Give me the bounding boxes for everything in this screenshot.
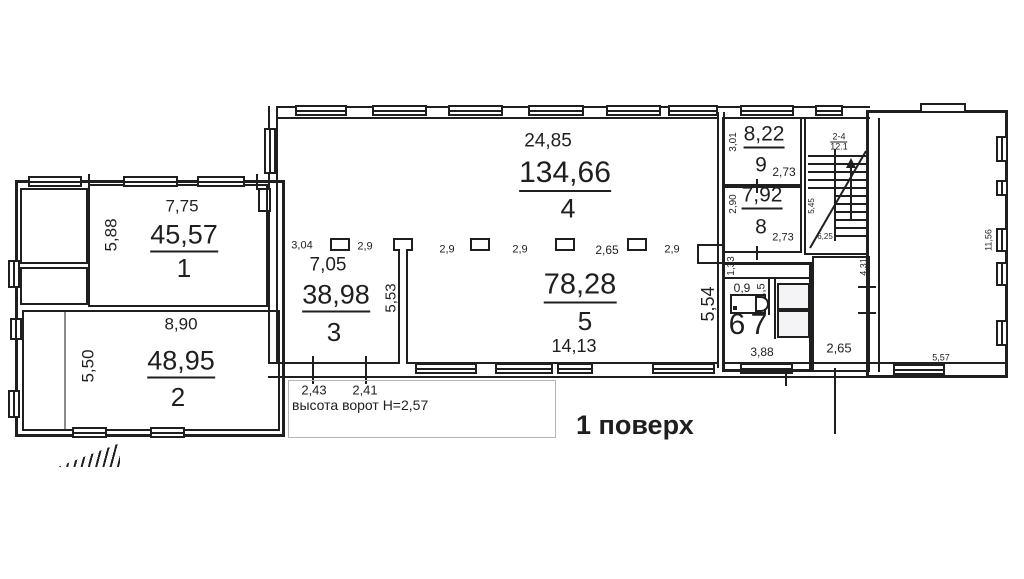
stairs-flight-bottom: 12.1 <box>830 143 848 152</box>
column <box>555 238 575 251</box>
window <box>652 363 715 374</box>
dim-tick <box>88 174 90 190</box>
col-spacing: 2,9 <box>439 245 454 256</box>
storage-wall-dim: 4,31 <box>860 258 869 276</box>
room-2-width: 8,90 <box>164 316 197 333</box>
door-tick <box>756 246 758 260</box>
closet <box>777 283 810 310</box>
window <box>295 105 347 116</box>
window <box>8 260 20 288</box>
window <box>495 363 553 374</box>
floor-plan: 7,75 5,88 45,57 1 8,90 5,50 48,95 2 7,05… <box>0 0 1024 579</box>
dim-tick-long <box>834 368 836 434</box>
room-2-depth: 5,50 <box>80 349 97 382</box>
col-spacing: 2,9 <box>512 245 527 256</box>
room-9-area: 8,22 <box>744 124 785 149</box>
window <box>10 318 22 340</box>
closet <box>777 310 810 338</box>
right-hall-bottom-dim: 5,57 <box>932 354 950 363</box>
stair-arrow-shaft <box>850 167 852 219</box>
gate-1-width: 2,43 <box>301 384 326 397</box>
wc-divider <box>768 279 770 315</box>
storage-width: 2,65 <box>826 342 851 355</box>
entrance-ramp <box>58 443 120 467</box>
right-hall-side-dim: 11,56 <box>985 229 994 251</box>
window <box>28 176 82 187</box>
col-spacing: 3,04 <box>291 241 312 252</box>
room-2-number: 2 <box>171 384 185 410</box>
wc-right-wall <box>774 279 776 339</box>
room-8-depth: 2,90 <box>729 194 739 213</box>
room-1-depth: 5,88 <box>103 218 120 251</box>
window <box>996 136 1008 162</box>
room-3-area: 38,98 <box>302 282 370 313</box>
stair-arrow-head <box>846 158 856 168</box>
gate-2-width: 2,41 <box>352 384 377 397</box>
window <box>815 105 843 116</box>
room-3-width: 7,05 <box>310 256 347 275</box>
room-1-width: 7,75 <box>165 198 198 215</box>
room-6-width: 0,9 <box>734 282 751 294</box>
window <box>557 363 593 374</box>
col-spacing: 2,65 <box>595 244 618 256</box>
room-9-width: 2,73 <box>772 166 795 178</box>
window <box>264 128 276 174</box>
room-5-area: 78,28 <box>544 271 617 304</box>
hall-depth: 5,54 <box>699 286 717 321</box>
room-4-number: 4 <box>560 196 575 223</box>
window <box>528 105 584 116</box>
window <box>415 363 477 374</box>
stairs-flight-label: 2-4 12.1 <box>830 133 848 152</box>
room-1-area: 45,57 <box>150 222 218 253</box>
col-spacing: 2,9 <box>357 242 372 253</box>
wc-inner-wall <box>724 277 810 279</box>
floor-title: 1 поверх <box>576 412 694 439</box>
gate-height-note: высота ворот Н=2,57 <box>292 398 428 412</box>
room-7-number: 7 <box>751 310 768 340</box>
window <box>996 180 1008 196</box>
window <box>996 228 1008 252</box>
dim-tick <box>785 368 787 386</box>
room-9-depth: 3,01 <box>729 132 739 151</box>
room-2-partition <box>64 312 66 429</box>
room-3-number: 3 <box>327 319 341 345</box>
room-8-width: 2,73 <box>772 233 793 244</box>
window <box>8 390 20 418</box>
stairs-depth: 5,45 <box>808 198 816 214</box>
small-room-a-outline <box>20 188 88 264</box>
room-5-width: 14,13 <box>551 337 596 355</box>
wc-passage-outline <box>697 244 724 264</box>
window <box>372 105 427 116</box>
room-7-depth: 3,88 <box>750 346 773 358</box>
wall-notch <box>920 103 966 113</box>
partition-depth: 5,53 <box>384 283 399 312</box>
wall-inner-right-hall <box>878 118 880 372</box>
room-6-number: 6 <box>729 310 746 340</box>
room-8-number: 8 <box>755 217 767 238</box>
window <box>893 364 945 375</box>
room-2-area: 48,95 <box>147 348 215 379</box>
window <box>668 105 718 116</box>
window <box>72 427 107 438</box>
stairs-width: 6,25 <box>817 233 833 241</box>
column <box>470 238 490 251</box>
col-spacing: 2,9 <box>664 245 679 256</box>
small-room-b-outline <box>20 267 88 305</box>
room-1-number: 1 <box>177 255 191 281</box>
column <box>627 238 647 251</box>
window <box>606 105 661 116</box>
room-5-number: 5 <box>578 308 592 334</box>
window <box>740 105 794 116</box>
dim-tick <box>256 174 258 190</box>
room-7-width: 1,5 <box>757 283 768 298</box>
room-4-area: 134,66 <box>519 158 611 192</box>
room-8-area: 7,92 <box>742 185 783 210</box>
window <box>996 262 1008 286</box>
window <box>123 176 178 187</box>
column <box>330 238 350 251</box>
room-4-width: 24,85 <box>524 132 572 151</box>
window <box>197 176 245 187</box>
window <box>448 105 503 116</box>
partition-room3-room5 <box>398 249 408 364</box>
room-9-number: 9 <box>755 155 767 176</box>
window <box>150 427 185 438</box>
stair-treads <box>808 149 834 189</box>
wc-passage-width: 1,33 <box>727 256 737 275</box>
window <box>996 320 1008 346</box>
